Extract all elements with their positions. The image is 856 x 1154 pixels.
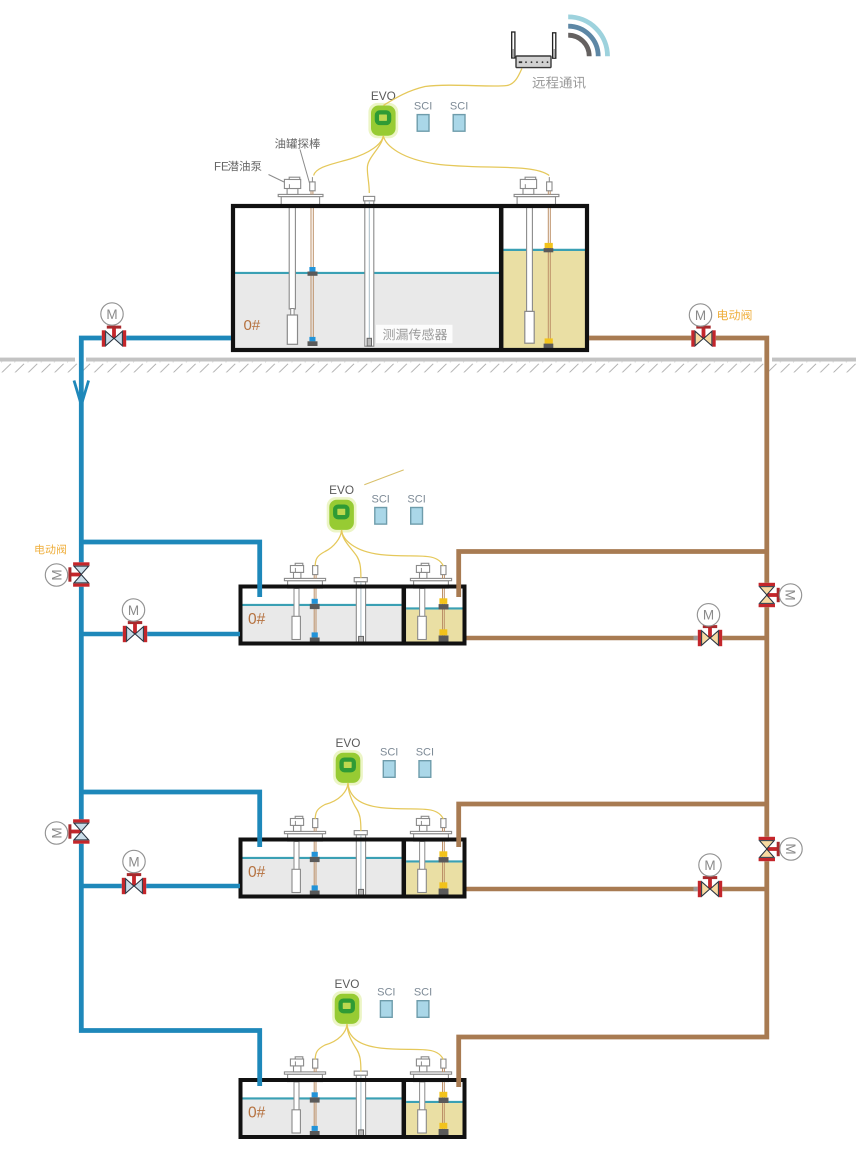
svg-text:M: M [106, 307, 117, 322]
svg-text:SCI: SCI [414, 101, 432, 113]
svg-text:M: M [49, 569, 64, 580]
svg-text:SCI: SCI [414, 987, 432, 999]
svg-text:EVO: EVO [336, 736, 361, 750]
svg-text:EVO: EVO [329, 483, 354, 497]
svg-text:SCI: SCI [407, 494, 425, 506]
svg-text:M: M [703, 608, 714, 623]
svg-text:0#: 0# [248, 1105, 266, 1122]
svg-text:EVO: EVO [335, 977, 360, 991]
svg-text:SCI: SCI [377, 987, 395, 999]
svg-text:SCI: SCI [372, 494, 390, 506]
svg-text:M: M [49, 827, 64, 838]
svg-text:0#: 0# [244, 317, 261, 334]
svg-text:SCI: SCI [416, 747, 434, 759]
svg-text:FE: FE [214, 161, 229, 173]
svg-text:SCI: SCI [450, 101, 468, 113]
svg-text:M: M [128, 854, 139, 869]
svg-text:0#: 0# [248, 864, 266, 881]
svg-text:M: M [783, 843, 798, 854]
svg-text:M: M [783, 589, 798, 600]
svg-text:M: M [695, 308, 706, 323]
svg-text:0#: 0# [248, 611, 266, 628]
svg-text:M: M [128, 603, 139, 618]
svg-text:M: M [704, 858, 715, 873]
svg-text:SCI: SCI [380, 747, 398, 759]
